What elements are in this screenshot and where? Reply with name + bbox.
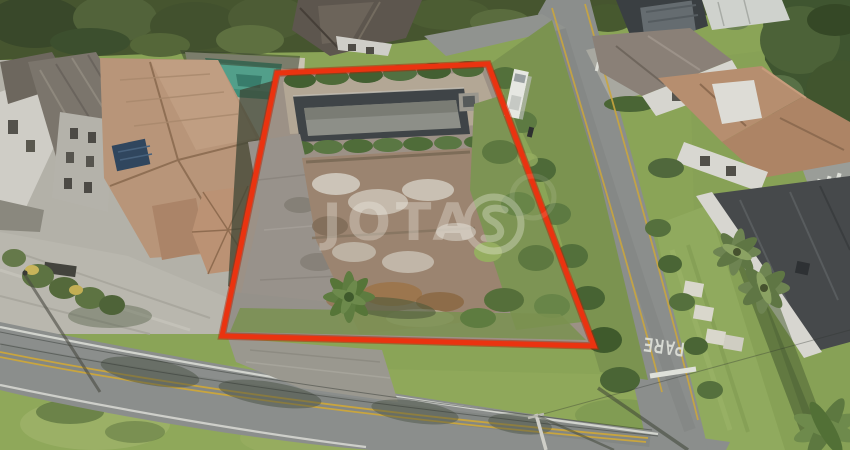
watermark-text: JOTA	[319, 193, 477, 253]
aerial-photo: PARE	[0, 0, 850, 450]
lot-shrub	[460, 308, 496, 328]
empty-pool	[293, 88, 470, 142]
front-shrub	[648, 158, 684, 178]
aerial-photo-canvas: PARE	[0, 0, 850, 450]
